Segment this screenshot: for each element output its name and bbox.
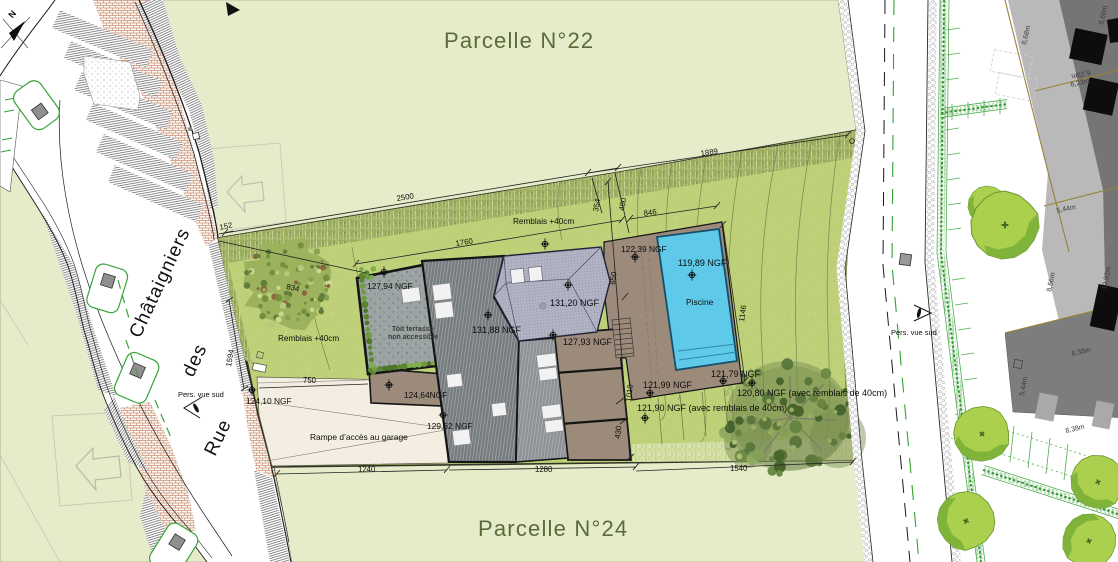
- svg-text:Toit terrasse: Toit terrasse: [392, 326, 434, 333]
- svg-text:650: 650: [608, 271, 619, 286]
- svg-text:430: 430: [613, 425, 623, 440]
- svg-text:Remblais +40cm: Remblais +40cm: [278, 334, 339, 343]
- svg-text:Pers. vue sud: Pers. vue sud: [891, 328, 937, 337]
- svg-text:129,62 NGF: 129,62 NGF: [427, 421, 473, 431]
- svg-text:1010: 1010: [624, 383, 635, 402]
- svg-text:846: 846: [643, 207, 657, 218]
- svg-text:750: 750: [303, 376, 317, 385]
- svg-text:127,94 NGF: 127,94 NGF: [367, 281, 413, 291]
- svg-text:non accessible: non accessible: [388, 334, 438, 341]
- svg-text:Piscine: Piscine: [686, 297, 714, 307]
- svg-text:Remblais +40cm: Remblais +40cm: [513, 217, 574, 226]
- svg-text:121,79 NGF: 121,79 NGF: [711, 369, 761, 379]
- svg-text:122,39 NGF: 122,39 NGF: [621, 244, 667, 254]
- svg-text:121,99 NGF: 121,99 NGF: [643, 380, 693, 390]
- svg-text:Parcelle N°24: Parcelle N°24: [478, 516, 628, 541]
- svg-text:124,10 NGF: 124,10 NGF: [246, 396, 292, 406]
- svg-text:Parcelle N°22: Parcelle N°22: [444, 28, 594, 53]
- svg-text:127,93 NGF: 127,93 NGF: [563, 337, 613, 347]
- svg-text:121,90 NGF (avec remblais de 4: 121,90 NGF (avec remblais de 40cm): [637, 403, 787, 413]
- svg-text:1540: 1540: [730, 464, 748, 473]
- svg-text:120,80 NGF (avec remblais de 4: 120,80 NGF (avec remblais de 40cm): [737, 388, 887, 398]
- svg-text:1280: 1280: [535, 465, 553, 474]
- svg-text:Rampe d’accès au garage: Rampe d’accès au garage: [310, 432, 408, 442]
- svg-text:131,88 NGF: 131,88 NGF: [472, 325, 522, 335]
- svg-text:131,20 NGF: 131,20 NGF: [550, 298, 600, 308]
- svg-text:119,89 NGF: 119,89 NGF: [678, 258, 727, 268]
- svg-text:1240: 1240: [358, 465, 376, 474]
- svg-text:124,64NGF: 124,64NGF: [404, 390, 447, 400]
